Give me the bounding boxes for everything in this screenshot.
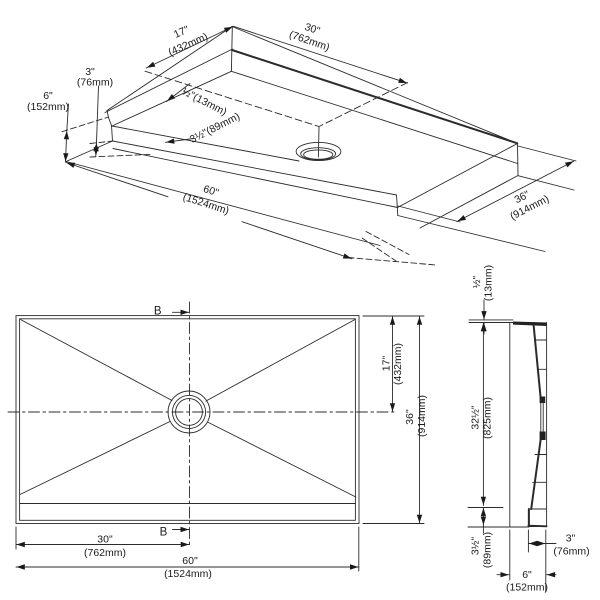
svg-text:(76mm): (76mm) xyxy=(77,77,113,89)
svg-text:(152mm): (152mm) xyxy=(506,582,548,594)
svg-text:60": 60" xyxy=(182,555,198,567)
svg-text:(432mm): (432mm) xyxy=(392,343,404,385)
svg-text:B: B xyxy=(160,526,168,538)
svg-text:32½": 32½" xyxy=(470,405,482,429)
svg-text:(914mm): (914mm) xyxy=(416,395,428,437)
svg-text:B: B xyxy=(154,305,162,317)
svg-text:3½"(89mm): 3½"(89mm) xyxy=(188,110,242,145)
svg-text:(825mm): (825mm) xyxy=(482,397,494,439)
svg-text:½"(13mm): ½"(13mm) xyxy=(180,86,229,119)
svg-text:(762mm): (762mm) xyxy=(84,547,126,559)
svg-text:(152mm): (152mm) xyxy=(27,101,69,113)
svg-text:½": ½" xyxy=(471,275,483,288)
svg-text:(76mm): (76mm) xyxy=(553,546,589,558)
svg-text:3½": 3½" xyxy=(470,537,482,556)
svg-text:17": 17" xyxy=(381,356,393,372)
svg-text:30": 30" xyxy=(97,534,113,546)
svg-text:(13mm): (13mm) xyxy=(483,265,495,301)
svg-text:3": 3" xyxy=(566,533,576,545)
svg-text:6": 6" xyxy=(522,569,532,581)
svg-text:(1524mm): (1524mm) xyxy=(164,568,212,580)
svg-text:(89mm): (89mm) xyxy=(482,532,494,568)
svg-text:36": 36" xyxy=(404,409,416,425)
